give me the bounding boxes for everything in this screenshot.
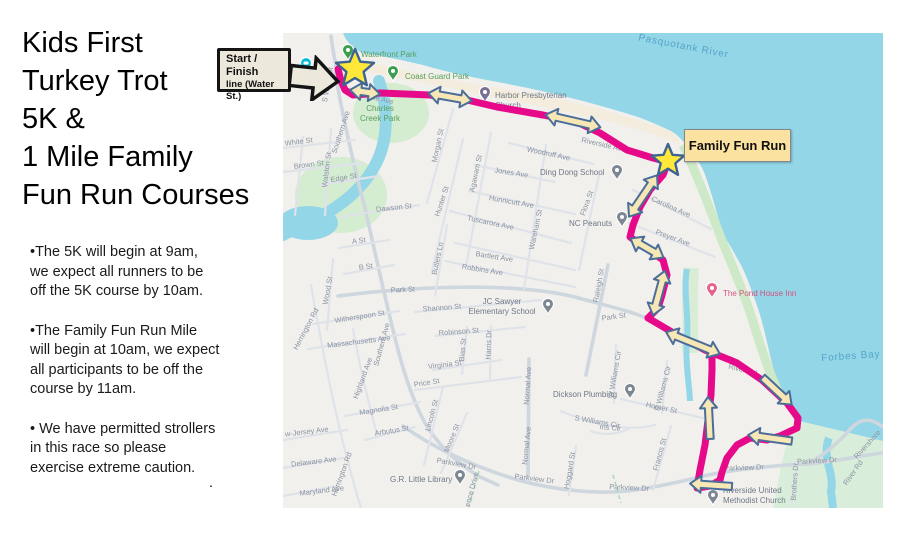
charles-creek-park-label: Creek Park [360,114,401,123]
street-label: B St [358,261,373,272]
harbor-presbyterian-church-label: Harbor Presbyterian [495,91,567,100]
course-map: Waterfront ParkCoast Guard ParkCharlesCr… [283,33,883,508]
pin-dot [483,90,487,94]
coast-guard-park-label: Coast Guard Park [405,72,470,81]
start-finish-callout: Start / Finishline (WaterSt.) [217,48,291,92]
info-bullet: •The 5K will begin at 9am, we expect all… [30,243,270,302]
street-label: Parkview Dr [724,462,765,472]
flyer-page: Kids First Turkey Trot 5K & 1 Mile Famil… [0,0,900,558]
jc-sawyer-elementary-school-label: Elementary School [468,307,535,316]
street-label: Harris Dr [483,329,493,359]
waterfront-park-label: Waterfront Park [361,50,418,59]
course-map-svg: Waterfront ParkCoast Guard ParkCharlesCr… [283,33,883,508]
street-label: A St [351,235,366,246]
pin-dot [615,168,619,172]
the-pond-house-inn-label: The Pond House Inn [723,289,796,298]
callout-line: Start / Finish [226,53,288,79]
street-label: Park St [391,284,416,294]
callout-line: line (Water [226,79,288,91]
pin-dot [458,473,462,477]
pin-dot [391,69,395,73]
family-fun-run-label: Family Fun Run [684,129,791,162]
pin-dot [628,387,632,391]
event-info-bullets: •The 5K will begin at 9am, we expect all… [30,243,270,498]
event-title: Kids First Turkey Trot 5K & 1 Mile Famil… [22,24,249,214]
info-bullet: •The Family Fun Run Mile will begin at 1… [30,322,270,400]
pin-dot [546,302,550,306]
ding-dong-school-label: Ding Dong School [540,168,605,177]
callout-line: St.) [226,91,288,103]
pin-dot [620,215,624,219]
nc-peanuts-label: NC Peanuts [569,219,612,228]
stray-period: . [209,474,213,490]
start-finish-arrow-icon [289,55,341,101]
gr-little-library-label: G.R. Little Library [390,475,452,484]
pin-dot [710,286,714,290]
pin-dot [346,48,350,52]
riverside-united-methodist-church-label: Methodist Church [723,496,786,505]
jc-sawyer-elementary-school-label: JC Sawyer [483,297,522,306]
street-label: ms Cir [599,422,622,433]
info-bullet: • We have permitted strollers in this ra… [30,420,270,479]
pin-dot [711,493,715,497]
